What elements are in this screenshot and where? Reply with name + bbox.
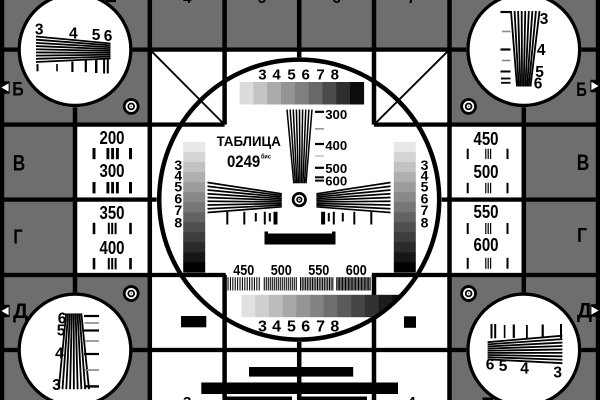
- svg-text:8: 8: [331, 67, 339, 84]
- svg-text:3: 3: [553, 365, 562, 382]
- svg-text:0249: 0249: [227, 152, 260, 171]
- svg-text:6: 6: [302, 67, 310, 84]
- svg-text:5: 5: [287, 319, 296, 336]
- svg-text:4: 4: [272, 67, 281, 84]
- svg-text:Д: Д: [13, 299, 28, 323]
- svg-text:4: 4: [537, 42, 546, 59]
- svg-text:4: 4: [520, 361, 529, 378]
- svg-text:5: 5: [287, 67, 295, 84]
- svg-text:В: В: [13, 151, 26, 176]
- svg-text:3: 3: [183, 394, 191, 400]
- svg-text:550: 550: [308, 263, 329, 279]
- svg-text:6: 6: [534, 76, 543, 93]
- svg-text:400: 400: [325, 138, 347, 153]
- svg-text:4: 4: [55, 346, 64, 363]
- svg-text:В: В: [577, 150, 590, 175]
- svg-text:Б: Б: [12, 80, 24, 101]
- svg-text:3: 3: [52, 377, 61, 394]
- svg-text:600: 600: [325, 174, 347, 189]
- svg-text:6: 6: [104, 28, 113, 45]
- svg-text:450: 450: [233, 263, 254, 279]
- svg-text:6: 6: [332, 0, 340, 7]
- svg-text:7: 7: [407, 0, 415, 7]
- svg-text:3: 3: [35, 22, 44, 39]
- svg-text:Г: Г: [13, 227, 23, 249]
- svg-text:300: 300: [100, 160, 125, 181]
- svg-text:бис: бис: [261, 153, 271, 161]
- svg-text:4: 4: [407, 394, 416, 400]
- svg-text:8: 8: [421, 215, 429, 231]
- svg-text:200: 200: [100, 127, 125, 148]
- svg-text:5: 5: [57, 323, 66, 340]
- svg-text:Д: Д: [577, 299, 592, 323]
- svg-text:3: 3: [540, 11, 549, 28]
- svg-text:400: 400: [100, 237, 125, 258]
- svg-text:ТАБЛИЦА: ТАБЛИЦА: [217, 134, 281, 149]
- svg-text:350: 350: [100, 202, 125, 223]
- svg-text:8: 8: [174, 215, 182, 231]
- svg-text:500: 500: [474, 161, 499, 182]
- svg-text:7: 7: [316, 319, 325, 336]
- svg-text:600: 600: [474, 234, 499, 255]
- svg-text:7: 7: [316, 67, 324, 84]
- svg-text:6: 6: [486, 357, 495, 374]
- svg-text:3: 3: [258, 67, 266, 84]
- svg-text:8: 8: [330, 319, 339, 336]
- svg-text:450: 450: [474, 128, 499, 149]
- svg-text:550: 550: [474, 201, 499, 222]
- svg-text:Г: Г: [577, 225, 587, 247]
- svg-text:600: 600: [346, 263, 367, 279]
- svg-text:5: 5: [92, 27, 101, 44]
- svg-text:3: 3: [258, 319, 267, 336]
- svg-text:4: 4: [183, 0, 192, 7]
- svg-text:6: 6: [301, 319, 310, 336]
- svg-text:4: 4: [69, 26, 78, 43]
- svg-text:500: 500: [271, 263, 292, 279]
- svg-text:5: 5: [499, 358, 508, 375]
- svg-text:4: 4: [272, 319, 281, 336]
- svg-text:5: 5: [258, 0, 266, 7]
- svg-text:Б: Б: [576, 79, 587, 101]
- svg-text:300: 300: [325, 107, 347, 122]
